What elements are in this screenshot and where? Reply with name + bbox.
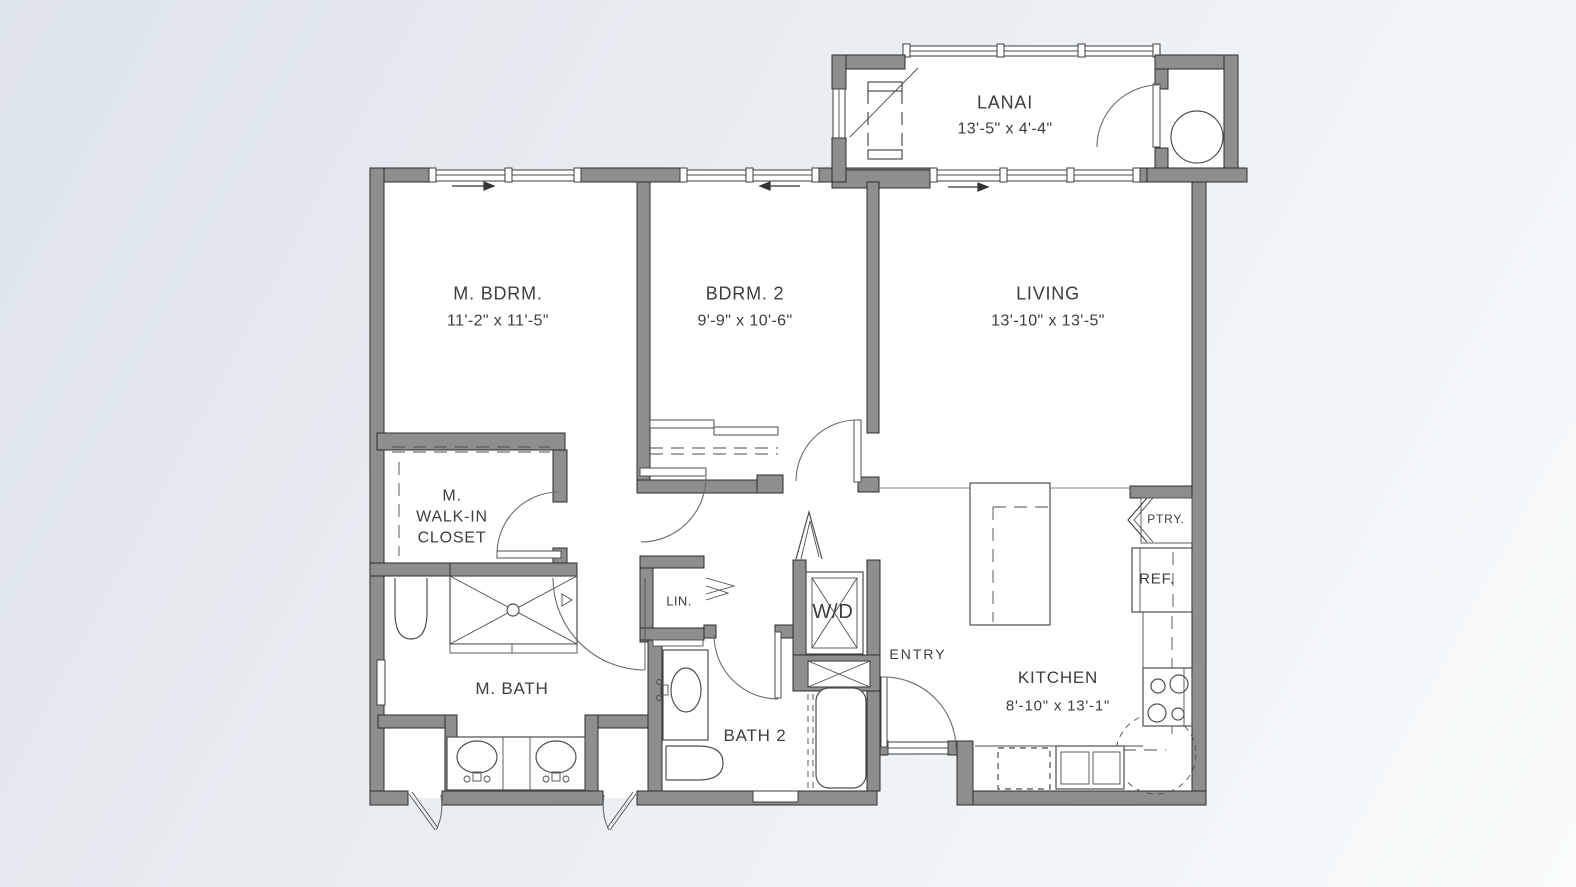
master-bedroom-dims: 11'-2" x 11'-5" xyxy=(447,312,549,333)
kitchen-name: KITCHEN xyxy=(1018,667,1098,689)
master-closet-label: M. WALK-IN CLOSET xyxy=(416,486,488,549)
refrigerator-label: REF. xyxy=(1139,569,1175,589)
entry-label: ENTRY xyxy=(889,645,946,663)
floor-plan-drawing xyxy=(0,0,1576,887)
master-closet-line3: CLOSET xyxy=(416,528,488,549)
master-bath-label: M. BATH xyxy=(475,678,548,700)
bath-2-label: BATH 2 xyxy=(723,725,786,747)
pantry-label: PTRY. xyxy=(1147,512,1185,528)
lanai-dims: 13'-5" x 4'-4" xyxy=(957,120,1052,141)
lanai-label: LANAI xyxy=(977,91,1033,114)
bedroom-2-name: BDRM. 2 xyxy=(706,282,785,305)
bedroom-2-dims: 9'-9" x 10'-6" xyxy=(697,312,792,333)
lanai-name: LANAI xyxy=(977,91,1033,114)
kitchen-dims: 8'-10" x 13'-1" xyxy=(1006,696,1110,716)
master-bedroom-name: M. BDRM. xyxy=(453,282,542,305)
floor-plan-page: LANAI 13'-5" x 4'-4" M. BDRM. 11'-2" x 1… xyxy=(0,0,1576,887)
master-closet-line2: WALK-IN xyxy=(416,507,488,528)
washer-dryer-label: W/D xyxy=(812,599,853,625)
living-name: LIVING xyxy=(1016,282,1080,305)
master-closet-line1: M. xyxy=(416,486,488,507)
linen-label: LIN. xyxy=(666,594,691,611)
living-dims: 13'-10" x 13'-5" xyxy=(991,312,1105,333)
